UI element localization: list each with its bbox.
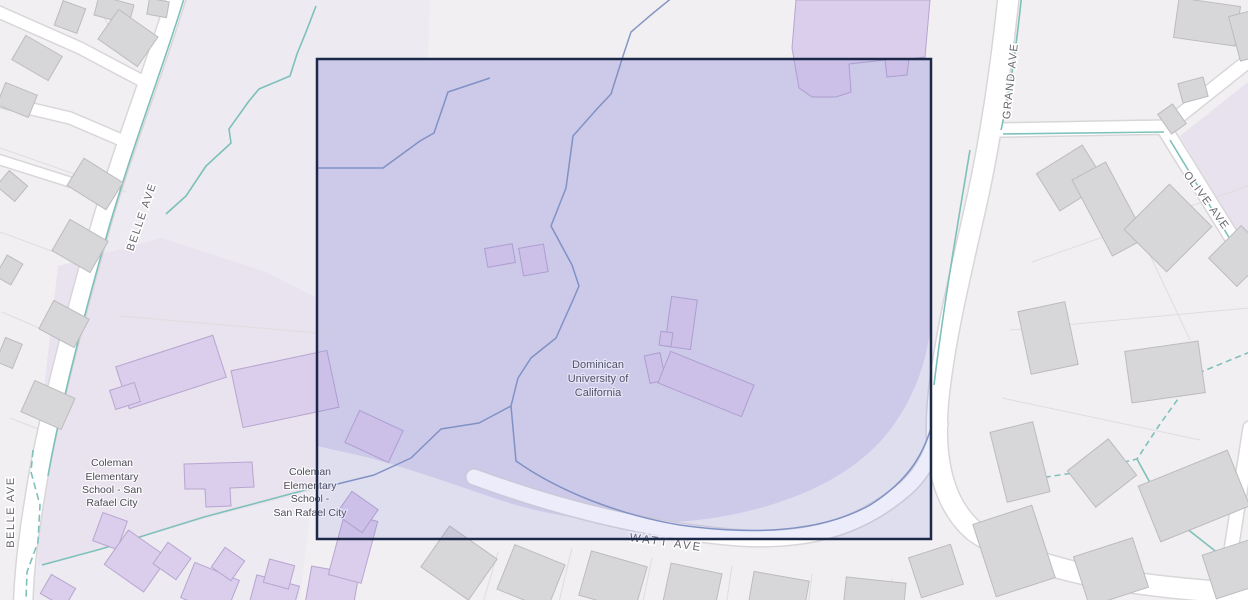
building-gray xyxy=(0,338,22,369)
map-viewport[interactable]: BELLE AVE BELLE AVE GRAND AVE OLIVE AVE … xyxy=(0,0,1248,600)
building-gray xyxy=(747,571,809,600)
map-canvas[interactable]: BELLE AVE BELLE AVE GRAND AVE OLIVE AVE … xyxy=(0,0,1248,600)
building-gray xyxy=(1067,439,1136,507)
building-gray xyxy=(497,545,565,600)
building-gray xyxy=(909,544,964,598)
building-gray xyxy=(1072,162,1146,256)
building-gray xyxy=(147,0,169,18)
building-gray xyxy=(990,422,1050,503)
building-gray xyxy=(0,171,28,202)
svg-text:Coleman: Coleman xyxy=(91,457,133,469)
building-gray xyxy=(0,255,23,285)
building-gray xyxy=(1125,341,1206,403)
building-gray xyxy=(662,563,722,600)
svg-text:Rafael City: Rafael City xyxy=(86,497,138,509)
building-gray xyxy=(579,551,647,600)
parcel-line xyxy=(726,566,732,600)
building-gray xyxy=(842,577,906,600)
building-gray xyxy=(973,505,1055,596)
building-gray xyxy=(54,1,85,34)
building-gray xyxy=(1073,538,1148,600)
svg-text:Elementary: Elementary xyxy=(85,471,139,483)
road-label-belle-ave-south: BELLE AVE xyxy=(5,476,17,547)
selection-rectangle[interactable] xyxy=(317,59,931,539)
building-gray xyxy=(1018,302,1078,375)
road-cross-ne xyxy=(1000,127,1168,130)
svg-text:School - San: School - San xyxy=(82,484,142,496)
